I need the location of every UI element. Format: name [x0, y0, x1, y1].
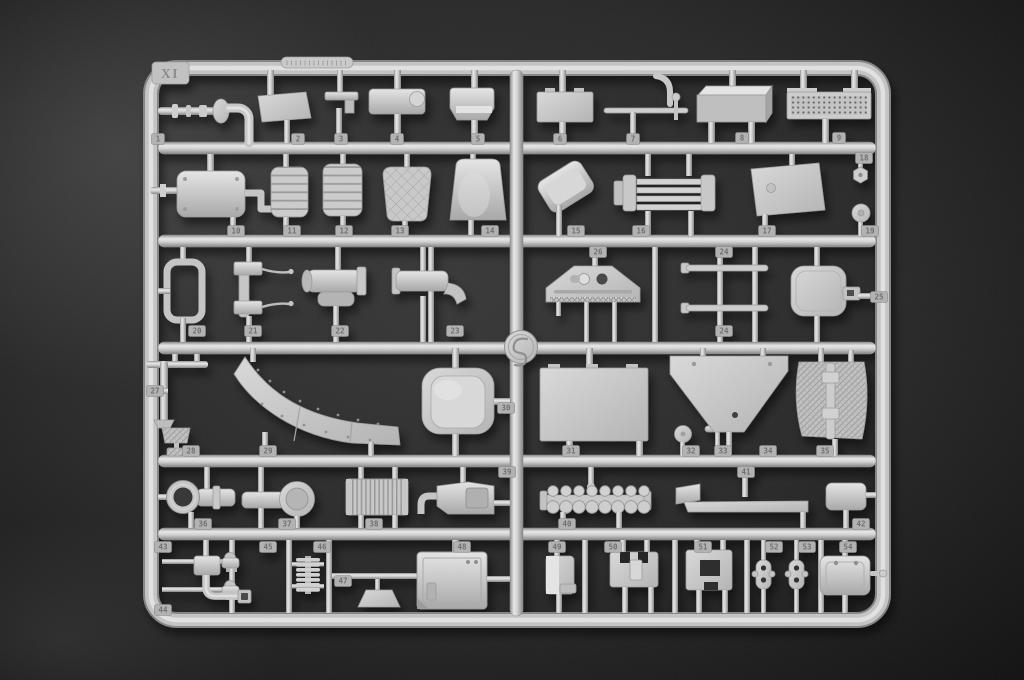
photo-canvas: XI: [0, 0, 1024, 680]
film-grain-overlay: [0, 0, 1024, 680]
